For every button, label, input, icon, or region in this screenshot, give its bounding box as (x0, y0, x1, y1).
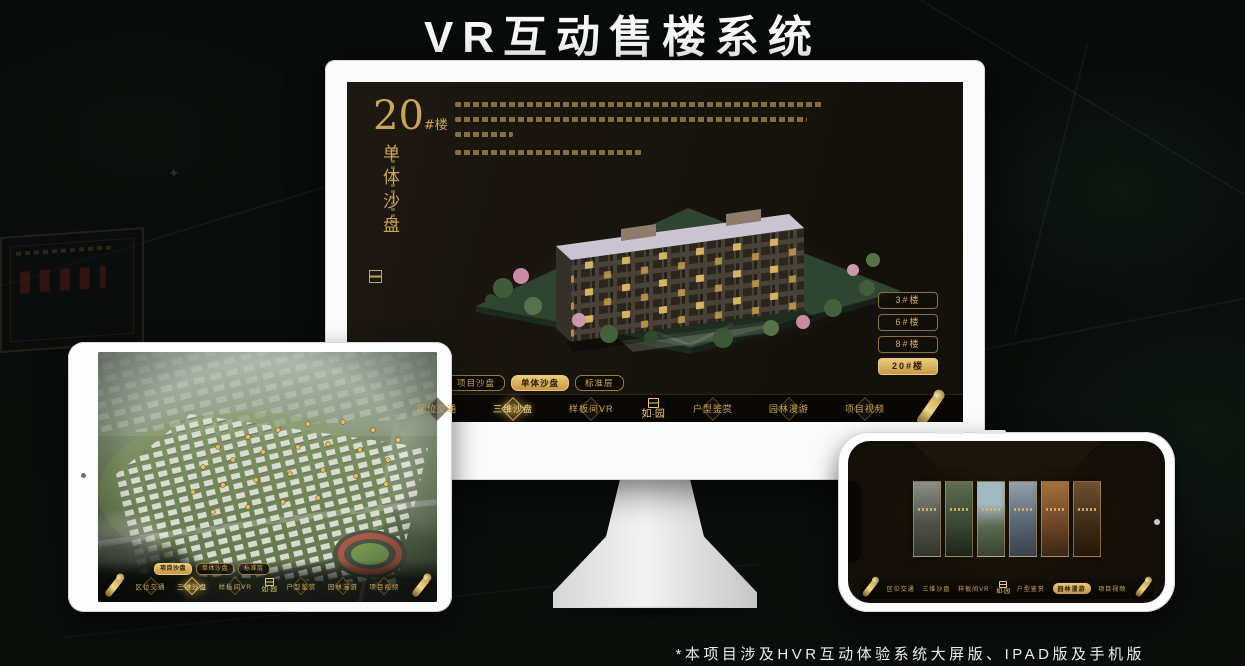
building-subtitle: 单体沙盘 (377, 144, 402, 240)
tablet-nav-item-garden-tour[interactable]: 园林漫游 (328, 581, 358, 591)
intro-line (455, 102, 823, 107)
brand-logo: 如·园 (642, 398, 665, 420)
nav-item-3d-sandbox[interactable]: 三维沙盘 (493, 402, 533, 415)
brand-seal-icon (648, 398, 659, 408)
nav-item-location[interactable]: 区位交通 (417, 402, 457, 415)
tablet-nav-bar: 项目沙盘 单体沙盘 标准层 区位交通 三维沙盘 样板间VR 如·园 户型鉴赏 园… (98, 560, 437, 602)
tab-standard-floor[interactable]: 标准层 (575, 375, 624, 391)
floor-button-20[interactable]: 20#楼 (878, 358, 938, 375)
panorama-card-6[interactable] (1073, 481, 1101, 557)
phone-nav-item-3d-sandbox[interactable]: 三维沙盘 (922, 584, 950, 593)
brand-seal-icon (999, 581, 1007, 588)
brand-logo-text: 如·园 (262, 586, 277, 593)
phone-volume-button (976, 430, 1006, 434)
monitor-stand-shadow (520, 606, 790, 620)
intro-line (455, 117, 807, 122)
scroll-menu-icon-left[interactable] (861, 578, 878, 597)
tablet-nav-item-location[interactable]: 区位交通 (136, 581, 166, 591)
phone-brand-logo: 如·园 (996, 581, 1010, 595)
intro-line (455, 132, 513, 137)
phone-nav-bar: 区位交通 三维沙盘 样板间VR 如·园 户型鉴赏 园林漫游 项目视频 (860, 577, 1153, 599)
brand-logo-text: 如·园 (642, 409, 665, 420)
tablet-camera (81, 473, 86, 478)
phone-front-camera (1154, 519, 1160, 525)
panorama-card-4[interactable] (1009, 481, 1037, 557)
brand-logo-text: 如·园 (996, 589, 1010, 595)
nav-item-garden-tour[interactable]: 园林漫游 (769, 402, 809, 415)
floor-button-3[interactable]: 3#楼 (878, 292, 938, 309)
tab-project-sandbox[interactable]: 项目沙盘 (447, 375, 505, 391)
tab-single-sandbox[interactable]: 单体沙盘 (511, 375, 569, 391)
nav-item-showroom-vr[interactable]: 样板间VR (569, 402, 614, 415)
nav-item-floorplans[interactable]: 户型鉴赏 (693, 402, 733, 415)
view-tab-row: 项目沙盘 单体沙盘 标准层 (447, 375, 624, 391)
phone-volume-button (934, 430, 964, 434)
phone-nav-item-showroom-vr[interactable]: 样板间VR (958, 584, 989, 593)
tablet-brand-logo: 如·园 (262, 578, 277, 594)
building-subtitle-caption (391, 148, 395, 224)
compass-icon: ✦ (168, 166, 182, 180)
phone-device: 区位交通 三维沙盘 样板间VR 如·园 户型鉴赏 园林漫游 项目视频 (838, 432, 1175, 612)
monitor-stand (553, 478, 757, 608)
scroll-menu-icon-left[interactable] (104, 574, 124, 597)
pano-ceiling-beam (911, 441, 1101, 467)
floor-button-group: 3#楼 6#楼 8#楼 20#楼 (878, 292, 938, 375)
nav-item-project-video[interactable]: 项目视频 (845, 402, 885, 415)
panorama-card-1[interactable] (913, 481, 941, 557)
scroll-menu-icon-right[interactable] (411, 574, 431, 597)
tablet-device: 项目沙盘 单体沙盘 标准层 区位交通 三维沙盘 样板间VR 如·园 户型鉴赏 园… (68, 342, 452, 612)
building-number-suffix: #楼 (424, 118, 448, 133)
phone-screen: 区位交通 三维沙盘 样板间VR 如·园 户型鉴赏 园林漫游 项目视频 (848, 441, 1165, 603)
main-nav-bar: 区位交通 三维沙盘 样板间VR 如·园 户型鉴赏 园林漫游 项目视频 (347, 395, 963, 422)
tablet-nav-item-project-video[interactable]: 项目视频 (369, 581, 399, 591)
seal-icon (369, 270, 382, 283)
floor-button-6[interactable]: 6#楼 (878, 314, 938, 331)
phone-nav-item-project-video[interactable]: 项目视频 (1098, 584, 1126, 593)
panorama-card-2[interactable] (945, 481, 973, 557)
tablet-screen: 项目沙盘 单体沙盘 标准层 区位交通 三维沙盘 样板间VR 如·园 户型鉴赏 园… (98, 352, 437, 602)
phone-nav-item-location[interactable]: 区位交通 (887, 584, 915, 593)
building-heading: 20#楼 单体沙盘 (373, 96, 448, 240)
scroll-menu-icon-right[interactable] (1134, 578, 1151, 597)
phone-nav-item-floorplans[interactable]: 户型鉴赏 (1017, 584, 1045, 593)
panorama-card-gallery (913, 481, 1101, 557)
bg-plaque (0, 227, 144, 353)
building-number: 20 (373, 93, 424, 139)
tablet-nav-item-showroom-vr[interactable]: 样板间VR (219, 581, 253, 591)
phone-nav-item-garden-tour[interactable]: 园林漫游 (1053, 583, 1091, 594)
panorama-card-5[interactable] (1041, 481, 1069, 557)
page-background: ✦ VR互动售楼系统 20#楼 单体沙盘 (0, 0, 1245, 666)
footnote-text: *本项目涉及HVR互动体验系统大屏版、IPAD版及手机版 (676, 643, 1145, 664)
tablet-nav-item-floorplans[interactable]: 户型鉴赏 (286, 581, 316, 591)
tablet-nav-item-3d-sandbox[interactable]: 三维沙盘 (177, 581, 207, 591)
panorama-card-3[interactable] (977, 481, 1005, 557)
building-3d-model[interactable] (471, 138, 923, 366)
floor-button-8[interactable]: 8#楼 (878, 336, 938, 353)
page-title: VR互动售楼系统 (0, 1, 1245, 65)
phone-notch (848, 481, 861, 563)
bg-map-road (1014, 44, 1089, 336)
